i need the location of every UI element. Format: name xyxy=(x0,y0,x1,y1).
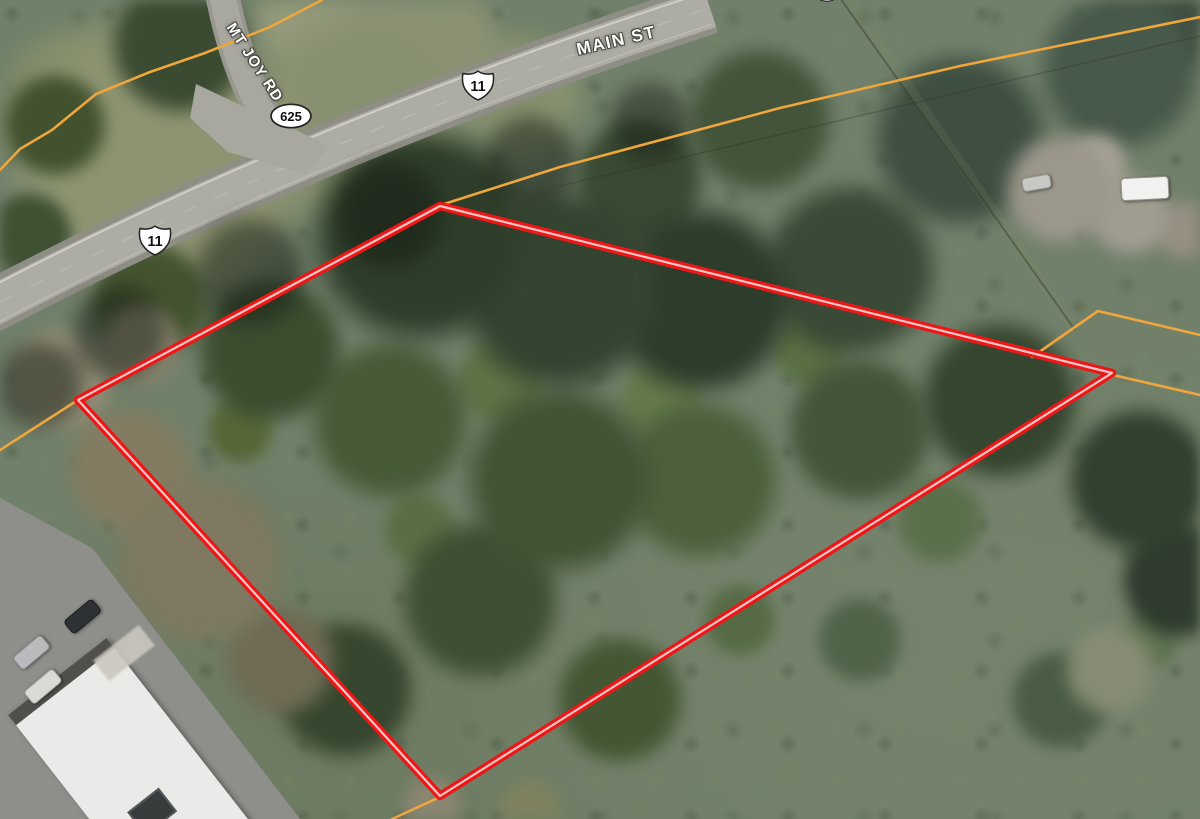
municipal-boundary-line xyxy=(392,797,440,819)
parcel-boundary-outline xyxy=(78,206,1112,796)
annotation-layer xyxy=(0,0,1200,819)
municipal-boundary-line xyxy=(0,400,78,450)
satellite-map-canvas[interactable]: MAIN ST MT JOY RD 11 11 625 xyxy=(0,0,1200,819)
us-shield-number: 11 xyxy=(470,79,485,95)
municipal-boundary-line xyxy=(1113,375,1200,395)
us-route-11-shield-upper: 11 xyxy=(460,69,496,102)
route-oval-outline xyxy=(816,0,838,1)
municipal-boundary-line xyxy=(1032,311,1200,357)
partial-route-shield-top-edge xyxy=(814,0,840,5)
route-oval-number: 625 xyxy=(280,109,302,124)
parcel-boundary-outline xyxy=(78,206,1112,796)
power-line xyxy=(560,36,1200,186)
municipal-boundary-line xyxy=(441,17,1200,205)
us-shield-number: 11 xyxy=(147,234,162,250)
us-route-11-shield-lower: 11 xyxy=(137,224,173,257)
state-route-625-oval: 625 xyxy=(269,102,313,130)
